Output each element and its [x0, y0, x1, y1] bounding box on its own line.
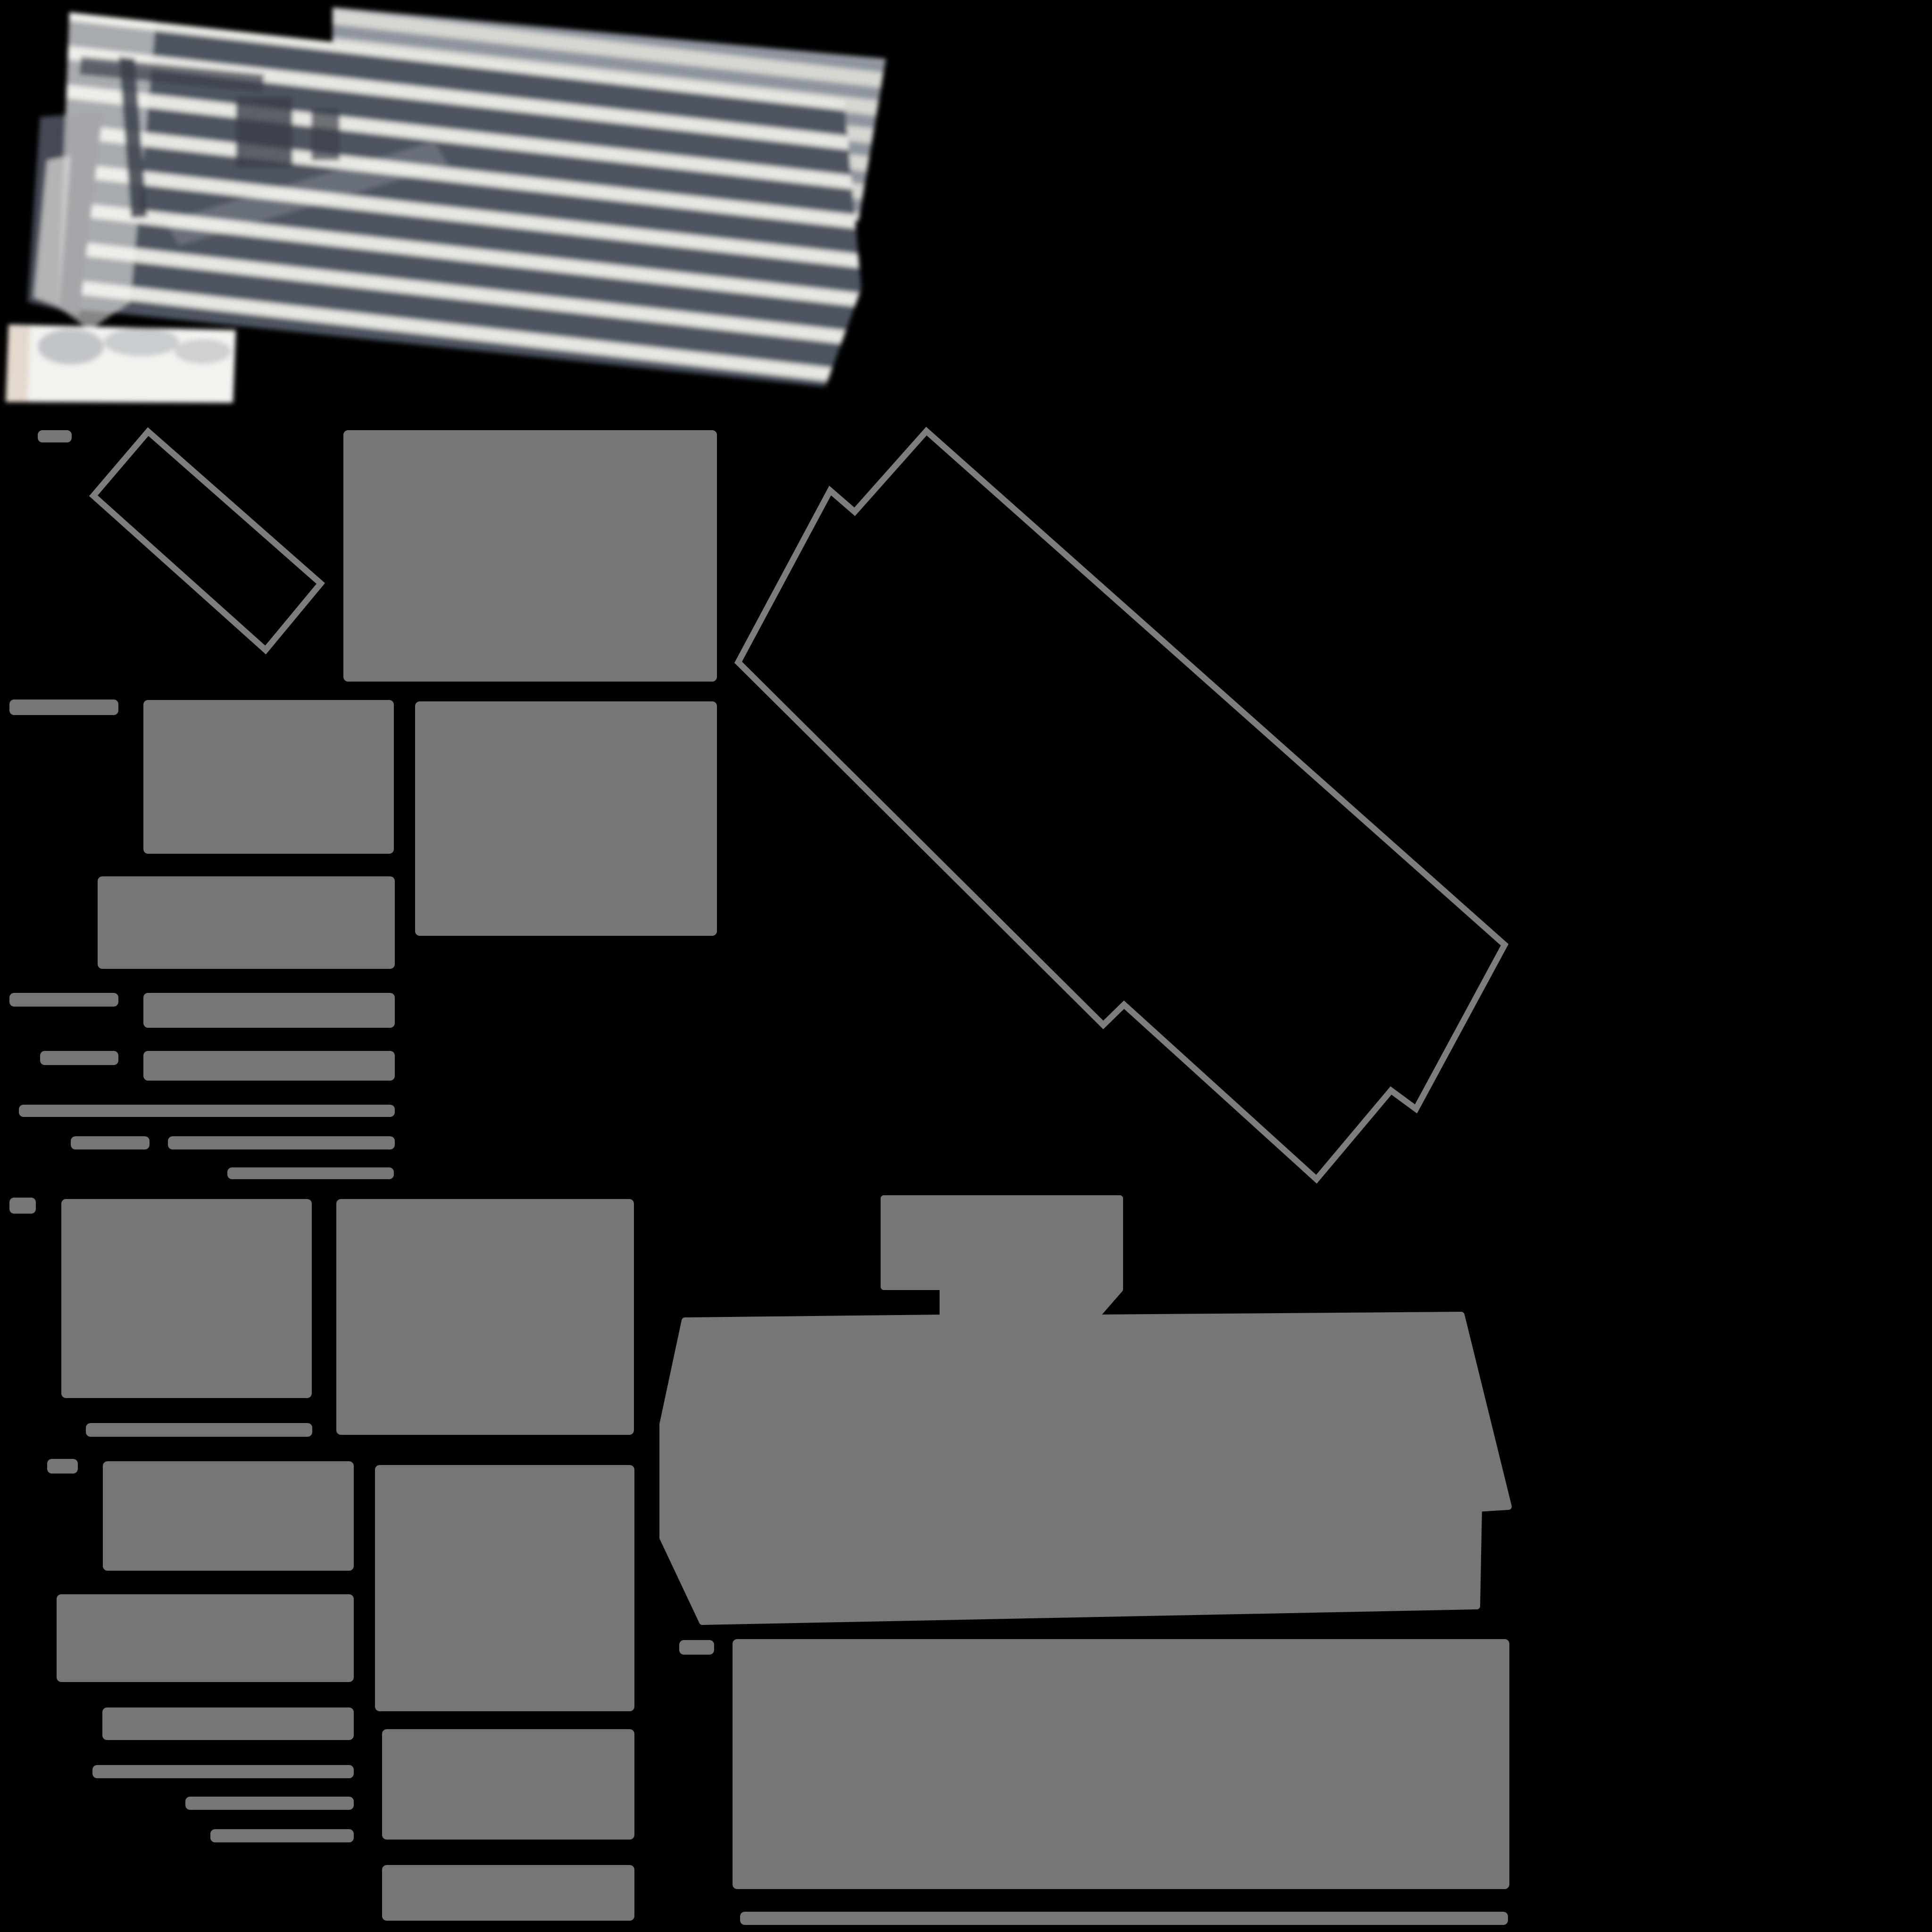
redaction-line-bottom-b — [185, 1797, 354, 1810]
redaction-block-row1-right — [415, 701, 717, 936]
redaction-label-row1 — [9, 700, 118, 715]
building-mass-side-chip — [679, 1640, 714, 1655]
scene-svg — [0, 0, 1932, 1932]
redaction-chip-a — [9, 1198, 36, 1214]
photo-blob-3 — [175, 339, 231, 364]
redaction-block-lower-left — [103, 1461, 354, 1571]
photo-mark-b — [311, 108, 340, 160]
redaction-block-bottom-a — [57, 1594, 354, 1682]
redaction-bar-bottom-a — [102, 1707, 354, 1740]
redaction-label-row3 — [9, 993, 118, 1007]
redaction-line-bottom-c — [210, 1829, 354, 1842]
redaction-field-row4 — [143, 1051, 395, 1081]
redaction-label-row4 — [40, 1051, 118, 1065]
photo-blob-2 — [104, 328, 179, 356]
redaction-chip-b — [47, 1459, 78, 1474]
photo-white-left-tint — [6, 325, 30, 402]
redaction-field-row3 — [143, 993, 395, 1028]
redaction-line-under-left — [86, 1423, 312, 1437]
photo-blob-1 — [38, 329, 104, 365]
redaction-block-row2 — [98, 876, 395, 969]
redaction-block-hero — [343, 430, 717, 682]
redaction-block-lower-right — [375, 1465, 634, 1711]
redaction-line-indent — [227, 1167, 394, 1179]
photo-mark-a — [236, 97, 292, 167]
building-strip-south — [740, 1912, 1508, 1925]
redaction-block-mid-a — [382, 1729, 634, 1840]
redacted-page-canvas — [0, 0, 1932, 1932]
redaction-block-col-right — [336, 1199, 634, 1435]
redaction-dash-top — [38, 430, 72, 442]
redaction-line-wide — [19, 1105, 395, 1117]
redaction-line-bottom-a — [92, 1765, 354, 1778]
redaction-block-col-left — [61, 1199, 312, 1398]
redaction-line-short-a — [71, 1136, 150, 1149]
redaction-block-row1-left — [143, 700, 394, 854]
building-block-south — [733, 1639, 1509, 1889]
redaction-line-long-a — [168, 1136, 395, 1149]
redaction-block-mid-b — [382, 1865, 634, 1921]
aerial-photo-collage — [6, 7, 886, 403]
